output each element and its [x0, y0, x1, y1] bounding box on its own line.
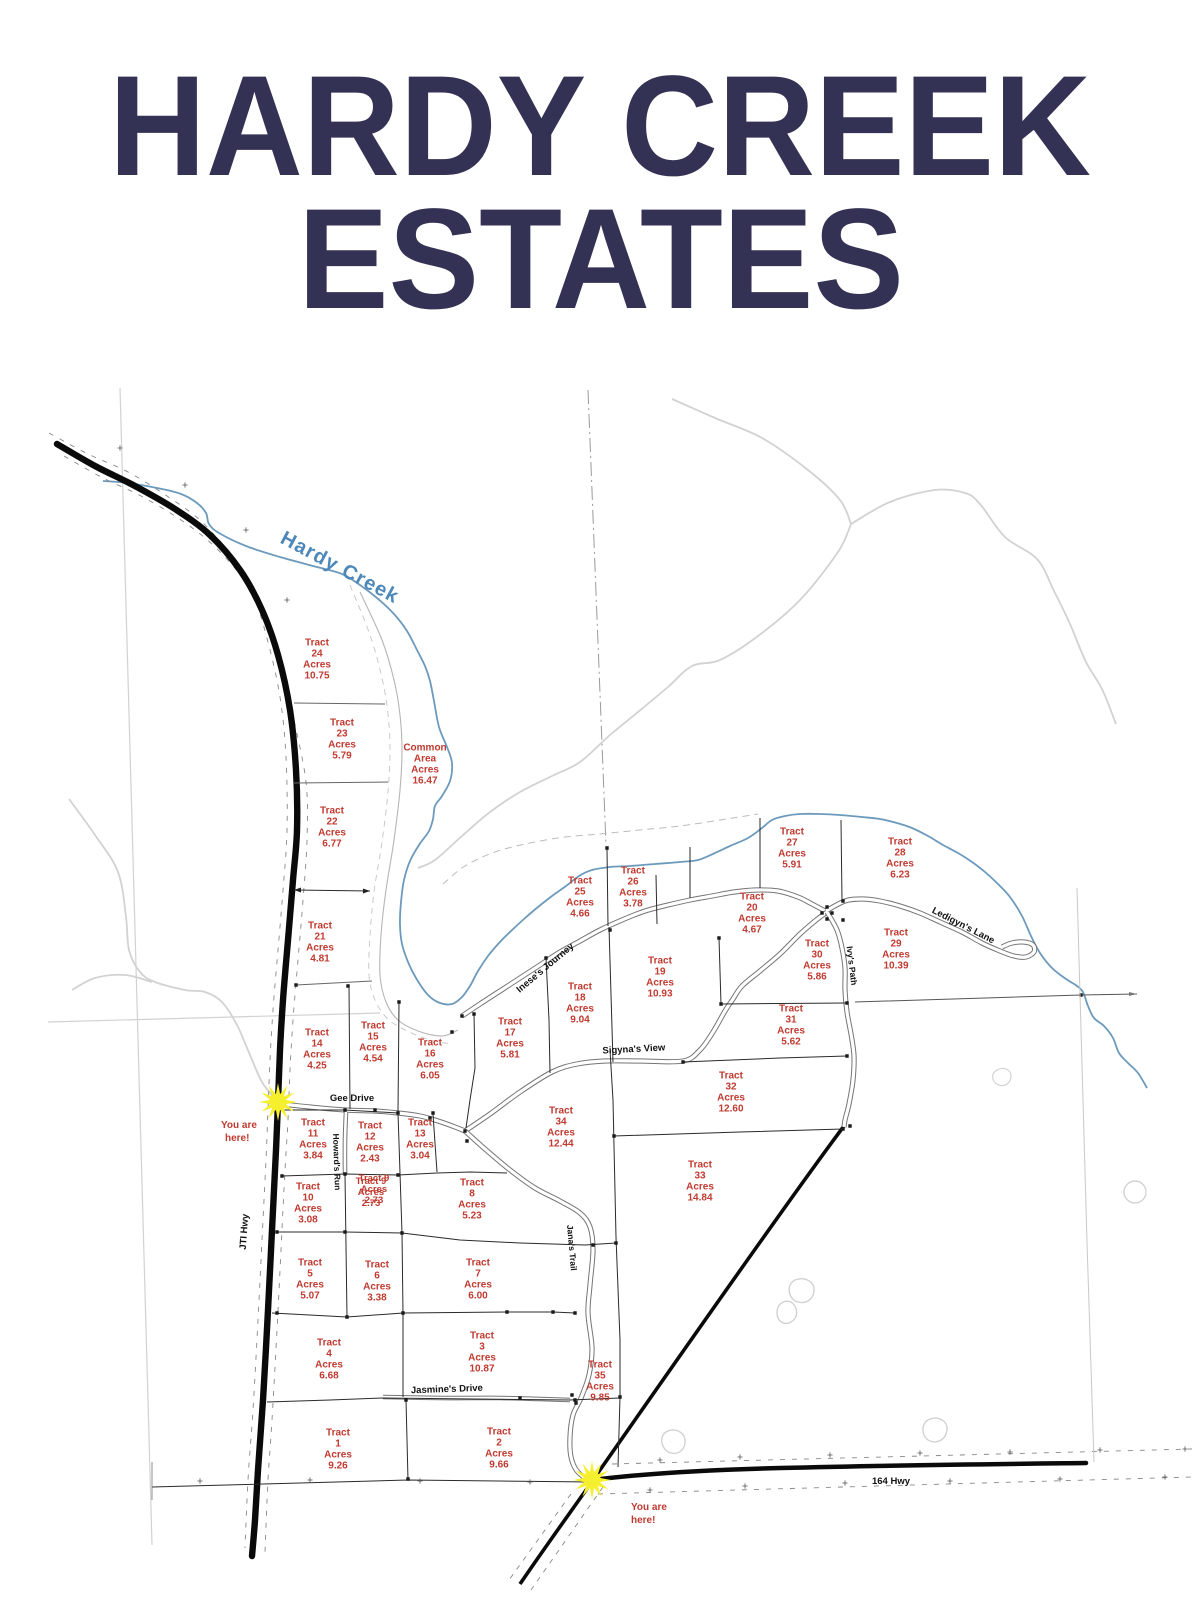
- svg-text:Howard's Run: Howard's Run: [331, 1133, 343, 1190]
- svg-text:Tract24Acres10.75: Tract24Acres10.75: [303, 638, 331, 682]
- svg-text:Tract32Acres12.60: Tract32Acres12.60: [717, 1071, 745, 1115]
- svg-text:Tract3Acres10.87: Tract3Acres10.87: [468, 1331, 496, 1375]
- svg-text:Gee Drive: Gee Drive: [330, 1093, 374, 1104]
- svg-text:Tract19Acres10.93: Tract19Acres10.93: [646, 956, 674, 1000]
- svg-text:164 Hwy: 164 Hwy: [872, 1476, 911, 1487]
- svg-text:Tract29Acres10.39: Tract29Acres10.39: [882, 928, 910, 972]
- svg-text:Tract33Acres14.84: Tract33Acres14.84: [686, 1160, 714, 1204]
- svg-text:ESTATES: ESTATES: [298, 180, 904, 339]
- svg-text:Tract34Acres12.44: Tract34Acres12.44: [547, 1106, 575, 1150]
